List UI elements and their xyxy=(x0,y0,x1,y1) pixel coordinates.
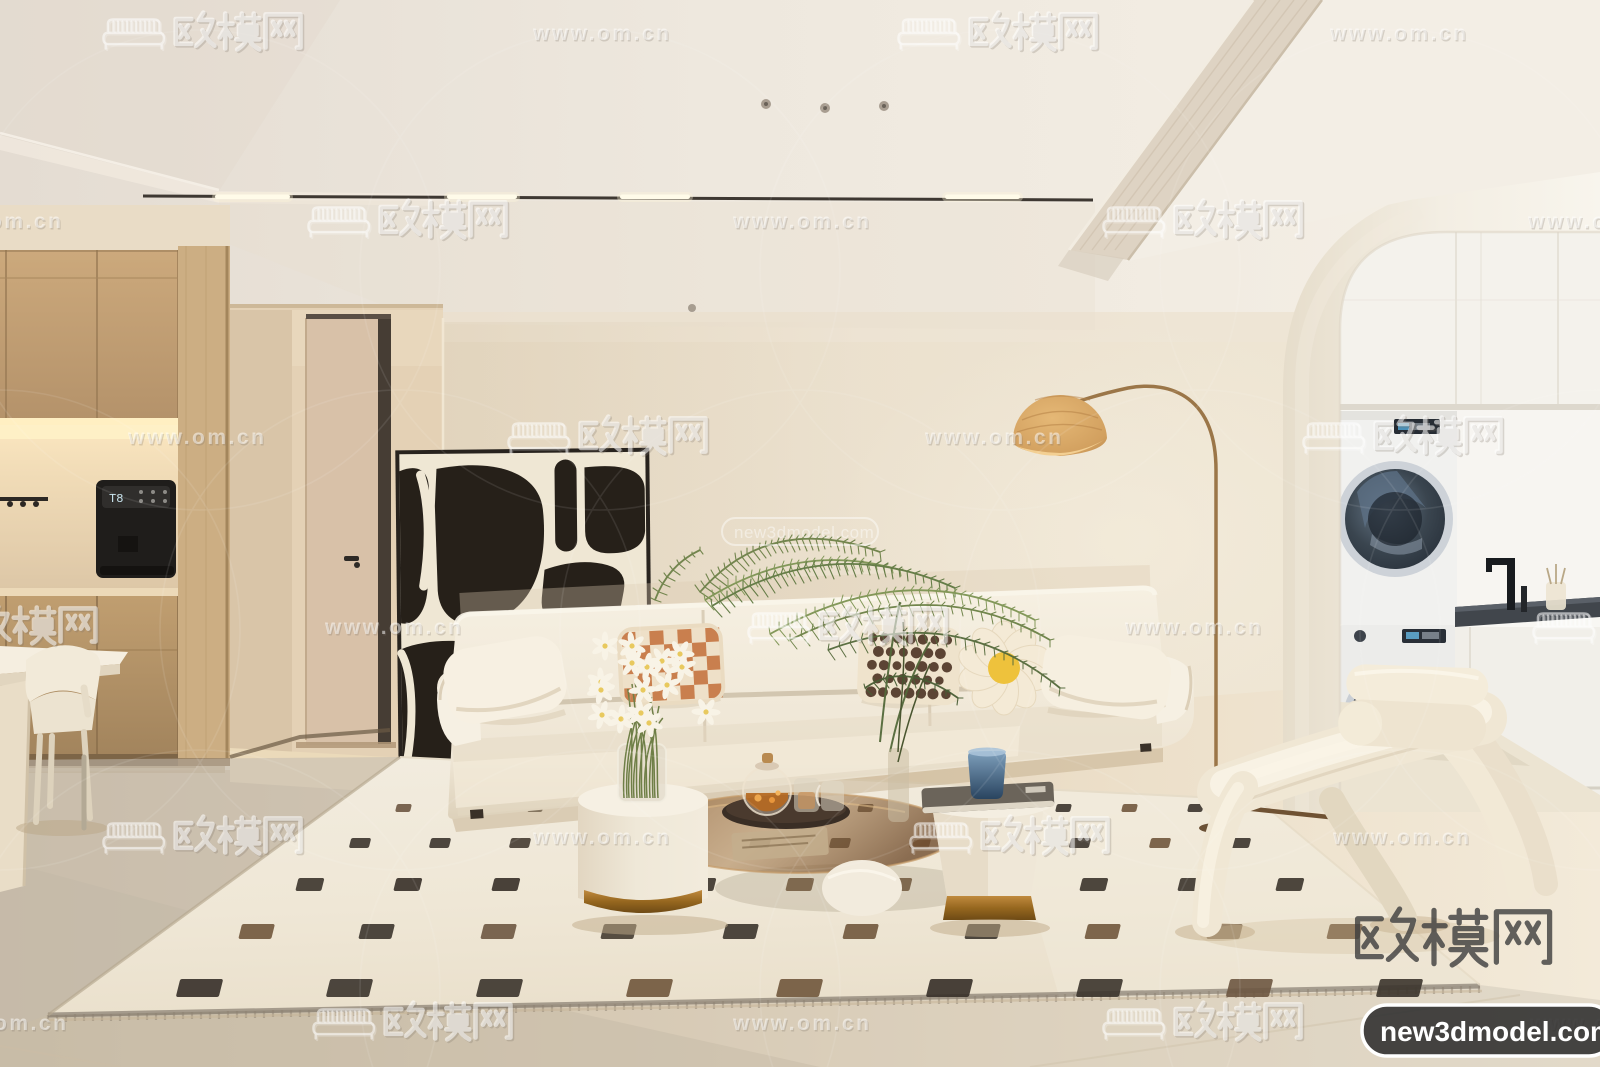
svg-text:www.om.cn: www.om.cn xyxy=(532,826,671,849)
svg-text:www.om.cn: www.om.cn xyxy=(924,426,1063,449)
svg-text:www.om.cn: www.om.cn xyxy=(0,1012,68,1035)
svg-text:www.om.cn: www.om.cn xyxy=(532,22,671,45)
svg-text:www.om.cn: www.om.cn xyxy=(127,426,266,449)
svg-text:www.om.cn: www.om.cn xyxy=(0,210,63,233)
svg-text:www.om.cn: www.om.cn xyxy=(1124,616,1263,639)
svg-text:www.om.cn: www.om.cn xyxy=(732,1012,871,1035)
svg-text:www.om.cn: www.om.cn xyxy=(1527,210,1600,233)
svg-text:www.om.cn: www.om.cn xyxy=(324,616,463,639)
svg-text:www.om.cn: www.om.cn xyxy=(1329,22,1468,45)
svg-text:new3dmodel.com: new3dmodel.com xyxy=(734,523,874,542)
svg-text:www.om.cn: www.om.cn xyxy=(1332,826,1471,849)
svg-text:www.om.cn: www.om.cn xyxy=(732,210,871,233)
svg-text:new3dmodel.com: new3dmodel.com xyxy=(1380,1016,1600,1047)
